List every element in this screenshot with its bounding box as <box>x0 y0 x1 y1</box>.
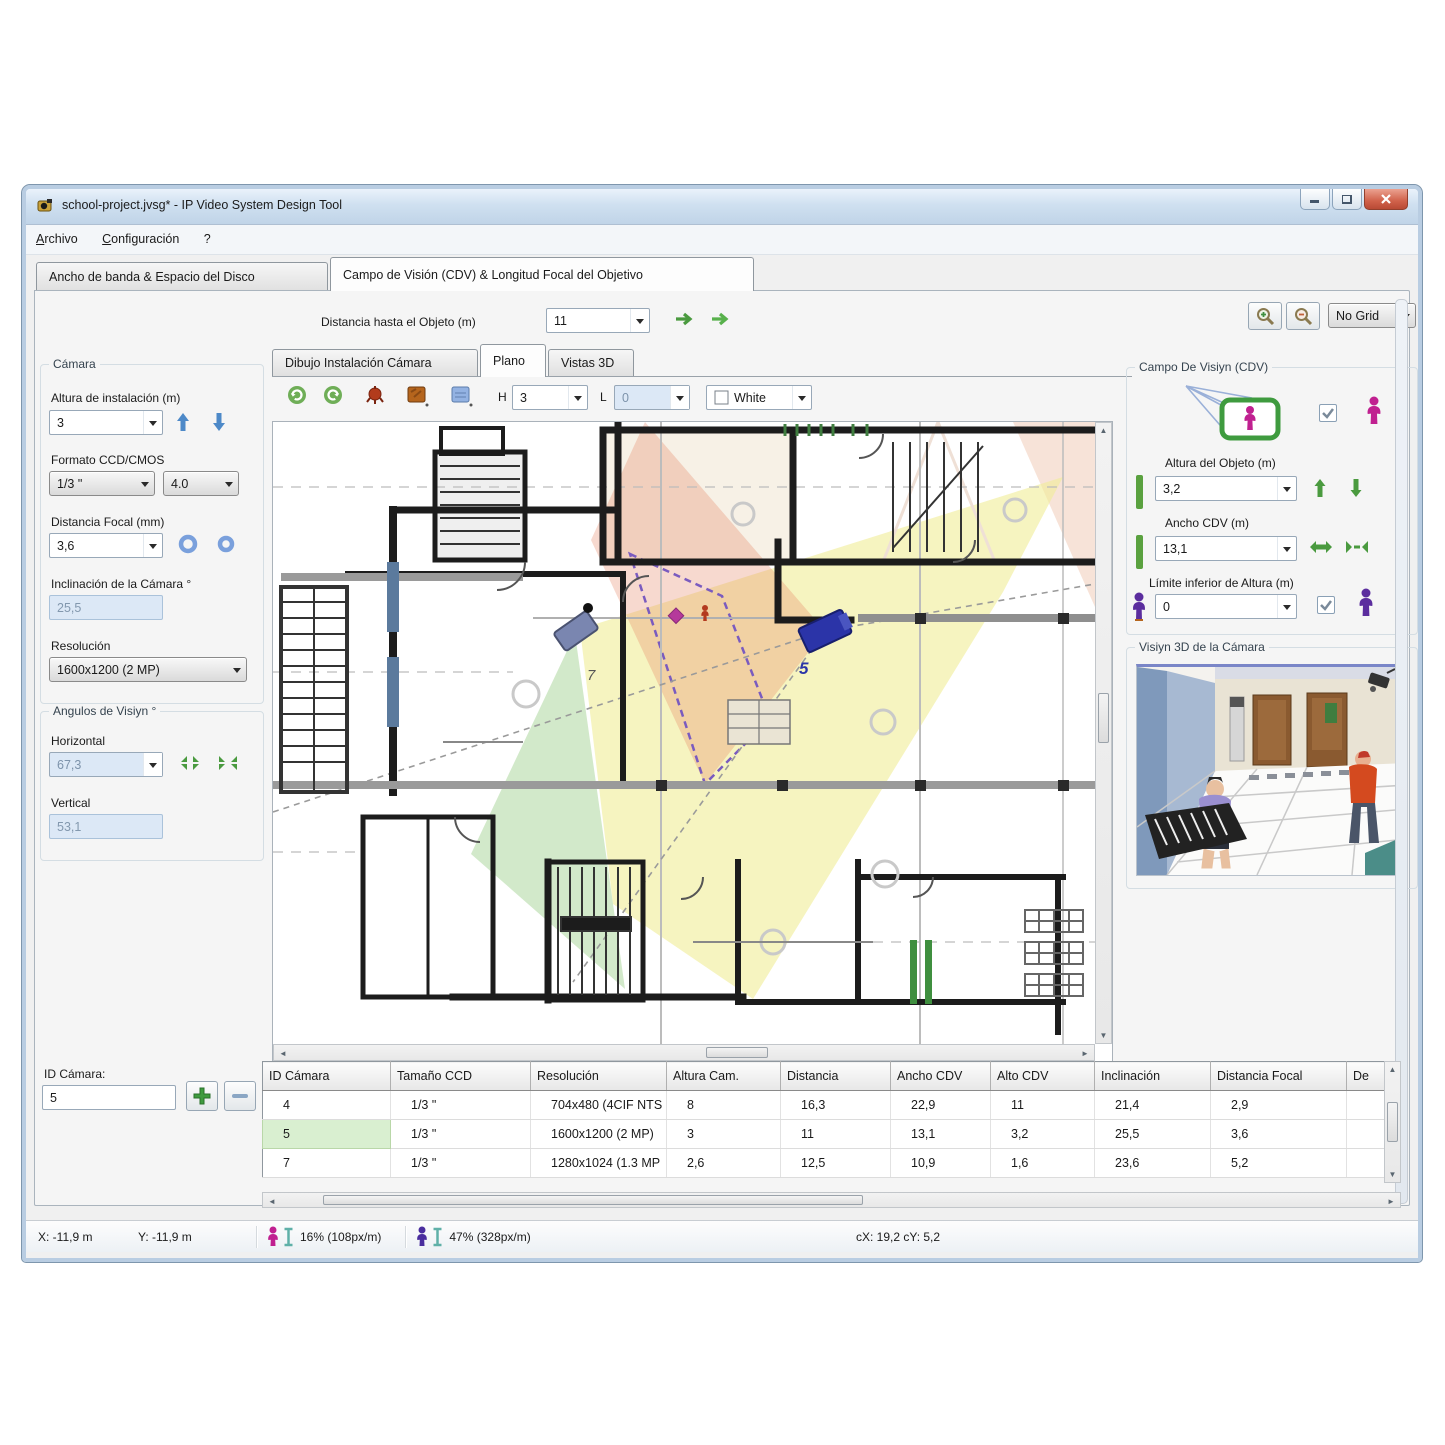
measure-bar-icon <box>283 1226 294 1248</box>
view3d-group: Visiyn 3D de la Cámara <box>1126 647 1418 889</box>
person-purple-icon[interactable] <box>1355 588 1377 618</box>
table-cell[interactable] <box>1347 1120 1385 1149</box>
scroll-left-arrow[interactable]: ◄ <box>278 1049 288 1058</box>
dropdown-arrow-icon[interactable] <box>219 472 238 495</box>
column-header[interactable]: De <box>1347 1062 1385 1091</box>
format-combobox[interactable]: 1/3 " <box>49 471 155 496</box>
camera-7-label: 7 <box>587 667 596 684</box>
dropdown-arrow-icon[interactable] <box>630 309 649 332</box>
focal-ring-wide-icon[interactable] <box>177 533 199 555</box>
camera-table-header[interactable]: ID CámaraTamaño CCDResoluciónAltura Cam.… <box>263 1062 1385 1091</box>
table-cell[interactable]: 4 <box>263 1091 391 1120</box>
distance-increase-fast-icon[interactable] <box>710 311 734 327</box>
dropdown-arrow-icon[interactable] <box>143 411 162 434</box>
angle-expand-icon[interactable] <box>179 754 201 772</box>
dropdown-arrow-icon[interactable] <box>568 386 587 409</box>
rotate-left-icon[interactable] <box>286 384 308 406</box>
fov-group-title: Campo De Visiyn (CDV) <box>1135 360 1272 374</box>
scroll-down-arrow[interactable]: ▼ <box>1096 1031 1111 1040</box>
camera-group-title: Cámara <box>49 357 100 371</box>
column-header[interactable]: Distancia <box>781 1062 891 1091</box>
h-label: H <box>498 390 507 404</box>
camera-group: Cámara Altura de instalación (m) 3 Forma… <box>40 364 264 704</box>
table-cell[interactable]: 1/3 " <box>391 1149 531 1178</box>
h-value: 3 <box>520 391 527 405</box>
app-window: school-project.jvsg* - IP Video System D… <box>22 185 1422 1262</box>
tab-fov[interactable]: Campo de Visión (CDV) & Longitud Focal d… <box>330 257 754 291</box>
table-row[interactable]: 41/3 "704x480 (4CIF NTS816,322,91121,42,… <box>263 1091 1385 1120</box>
add-camera-button[interactable] <box>186 1081 218 1111</box>
table-cell[interactable]: 11 <box>781 1120 891 1149</box>
menu-bar: Archivo Configuración ? <box>26 225 1418 255</box>
table-cell[interactable]: 16,3 <box>781 1091 891 1120</box>
height-up-icon[interactable] <box>175 412 191 432</box>
resolution-value: 1600x1200 (2 MP) <box>57 663 160 677</box>
scroll-left-arrow[interactable]: ◄ <box>267 1197 277 1206</box>
view3d-render <box>1137 667 1407 875</box>
subtab-baseline <box>272 376 1132 377</box>
table-cell[interactable]: 22,9 <box>891 1091 991 1120</box>
table-vscroll-thumb[interactable] <box>1387 1102 1398 1142</box>
distance-combobox[interactable]: 11 <box>546 308 650 333</box>
title-bar[interactable]: school-project.jvsg* - IP Video System D… <box>26 189 1418 225</box>
h-combobox[interactable]: 3 <box>512 385 588 410</box>
minimize-button[interactable] <box>1300 189 1330 210</box>
camera-3d-view[interactable] <box>1136 664 1408 876</box>
column-header[interactable]: Tamaño CCD <box>391 1062 531 1091</box>
status-density2: 47% (328px/m) <box>414 1226 530 1248</box>
zoom-in-button[interactable] <box>1248 302 1282 330</box>
install-height-value: 3 <box>57 416 64 430</box>
column-header[interactable]: ID Cámara <box>263 1062 391 1091</box>
table-cell[interactable]: 11 <box>991 1091 1095 1120</box>
dropdown-arrow-icon[interactable] <box>143 534 162 557</box>
table-row[interactable]: 51/3 "1600x1200 (2 MP)31113,13,225,53,6 <box>263 1120 1385 1149</box>
camera-table-body[interactable]: 41/3 "704x480 (4CIF NTS816,322,91121,42,… <box>263 1091 1385 1178</box>
focal-value: 3,6 <box>57 539 74 553</box>
dropdown-arrow-icon[interactable] <box>1277 477 1296 500</box>
scroll-up-arrow[interactable]: ▲ <box>1385 1065 1400 1074</box>
window-title: school-project.jvsg* - IP Video System D… <box>62 198 342 212</box>
scroll-up-arrow[interactable]: ▲ <box>1096 426 1111 435</box>
camera-5-label: 5 <box>799 659 809 678</box>
close-button[interactable] <box>1364 189 1408 210</box>
dropdown-arrow-icon[interactable] <box>1277 537 1296 560</box>
scroll-right-arrow[interactable]: ► <box>1386 1197 1396 1206</box>
horizontal-label: Horizontal <box>51 734 105 748</box>
format-label: Formato CCD/CMOS <box>51 453 164 467</box>
status-bar: X: -11,9 m Y: -11,9 m 16% (108px/m) 47% … <box>26 1220 1418 1252</box>
table-cell[interactable]: 1/3 " <box>391 1091 531 1120</box>
fov-show-checkbox[interactable] <box>1319 404 1337 422</box>
table-cell[interactable]: 704x480 (4CIF NTS <box>531 1091 667 1120</box>
grid-value: No Grid <box>1336 309 1379 323</box>
color-swatch <box>714 390 729 405</box>
l-combobox[interactable]: 0 <box>614 385 690 410</box>
table-cell[interactable]: 1600x1200 (2 MP) <box>531 1120 667 1149</box>
column-header[interactable]: Ancho CDV <box>891 1062 991 1091</box>
dropdown-arrow-icon[interactable] <box>670 386 689 409</box>
rotate-right-icon[interactable] <box>322 384 344 406</box>
column-header[interactable]: Altura Cam. <box>667 1062 781 1091</box>
table-vertical-scrollbar[interactable]: ▲ ▼ <box>1384 1061 1401 1183</box>
angles-group: Angulos de Visiyn ° Horizontal 67,3 Vert… <box>40 711 264 861</box>
remove-camera-button[interactable] <box>224 1081 256 1111</box>
table-cell[interactable] <box>1347 1149 1385 1178</box>
object-height-down-icon[interactable] <box>1349 478 1363 498</box>
scroll-right-arrow[interactable]: ► <box>1080 1049 1090 1058</box>
add-region-icon[interactable] <box>450 384 474 408</box>
lower-limit-value: 0 <box>1163 600 1170 614</box>
tab-drawing[interactable]: Dibujo Instalación Cámara <box>272 349 478 376</box>
tab-plano[interactable]: Plano <box>480 344 546 377</box>
horizontal-angle-combobox[interactable]: 67,3 <box>49 752 163 777</box>
format-ratio-value: 4.0 <box>171 477 188 491</box>
camera-table: ID CámaraTamaño CCDResoluciónAltura Cam.… <box>262 1061 1385 1178</box>
table-cell[interactable]: 12,5 <box>781 1149 891 1178</box>
person-purple-small-icon <box>1129 592 1149 622</box>
floor-plan-canvas[interactable]: 5 7 <box>273 422 1095 1044</box>
color-select[interactable]: White <box>706 385 812 410</box>
status-cursor: cX: 19,2 cY: 5,2 <box>856 1230 940 1244</box>
distance-value: 11 <box>554 314 567 328</box>
dropdown-arrow-icon[interactable] <box>792 386 811 409</box>
object-height-value: 3,2 <box>1163 482 1180 496</box>
fov-target-icon[interactable] <box>1182 384 1312 446</box>
add-camera-marker-icon[interactable] <box>364 384 386 406</box>
plan-vscroll-thumb[interactable] <box>1098 693 1109 743</box>
dropdown-arrow-icon[interactable] <box>135 472 154 495</box>
column-header[interactable]: Resolución <box>531 1062 667 1091</box>
vertical-label: Vertical <box>51 796 90 810</box>
tilt-label: Inclinación de la Cámara ° <box>51 577 191 591</box>
table-cell[interactable]: 3 <box>667 1120 781 1149</box>
object-height-up-icon[interactable] <box>1313 478 1327 498</box>
focal-ring-tele-icon[interactable] <box>215 533 237 555</box>
dropdown-arrow-icon[interactable] <box>227 658 246 681</box>
menu-archivo[interactable]: Archivo <box>26 225 88 255</box>
angle-collapse-icon[interactable] <box>217 754 239 772</box>
green-bar-icon <box>1135 474 1144 510</box>
table-cell[interactable]: 2,9 <box>1211 1091 1347 1120</box>
table-cell[interactable]: 1280x1024 (1.3 MP <box>531 1149 667 1178</box>
column-header[interactable]: Inclinación <box>1095 1062 1211 1091</box>
table-cell[interactable]: 13,1 <box>891 1120 991 1149</box>
table-hscroll-thumb[interactable] <box>323 1195 863 1205</box>
column-header[interactable]: Distancia Focal <box>1211 1062 1347 1091</box>
table-cell[interactable] <box>1347 1091 1385 1120</box>
green-bar-icon <box>1135 534 1144 570</box>
install-height-combobox[interactable]: 3 <box>49 410 163 435</box>
table-cell[interactable]: 5,2 <box>1211 1149 1347 1178</box>
table-cell[interactable]: 3,2 <box>991 1120 1095 1149</box>
status-density1: 16% (108px/m) <box>265 1226 381 1248</box>
table-cell[interactable]: 7 <box>263 1149 391 1178</box>
maximize-button[interactable] <box>1332 189 1362 210</box>
table-row[interactable]: 71/3 "1280x1024 (1.3 MP2,612,510,91,623,… <box>263 1149 1385 1178</box>
view3d-group-title: Visiyn 3D de la Cámara <box>1135 640 1269 654</box>
status-x: X: -11,9 m <box>38 1230 138 1244</box>
table-cell[interactable]: 10,9 <box>891 1149 991 1178</box>
plan-hscroll-thumb[interactable] <box>706 1047 768 1058</box>
dropdown-arrow-icon[interactable] <box>143 753 162 776</box>
column-header[interactable]: Alto CDV <box>991 1062 1095 1091</box>
menu-configuracion[interactable]: Configuración <box>92 225 189 255</box>
l-label: L <box>600 390 607 404</box>
focal-combobox[interactable]: 3,6 <box>49 533 163 558</box>
fov-width-expand-icon[interactable] <box>1309 540 1333 554</box>
angles-group-title: Angulos de Visiyn ° <box>49 704 160 718</box>
measure-bar-icon <box>432 1226 443 1248</box>
plan-panel: 5 7 ▲ ▼ ◄ ► <box>272 421 1113 1062</box>
plan-vertical-scrollbar[interactable]: ▲ ▼ <box>1095 422 1112 1044</box>
person-magenta-icon[interactable] <box>1363 396 1385 426</box>
resolution-combobox[interactable]: 1600x1200 (2 MP) <box>49 657 247 682</box>
status-y: Y: -11,9 m <box>138 1230 248 1244</box>
fov-width-label: Ancho CDV (m) <box>1165 516 1249 530</box>
camera-id-label: ID Cámara: <box>44 1067 105 1081</box>
table-cell[interactable]: 1,6 <box>991 1149 1095 1178</box>
table-cell[interactable]: 8 <box>667 1091 781 1120</box>
color-value: White <box>734 391 766 405</box>
table-cell[interactable]: 5 <box>263 1120 391 1149</box>
table-cell[interactable]: 1/3 " <box>391 1120 531 1149</box>
table-cell[interactable]: 23,6 <box>1095 1149 1211 1178</box>
tab-3dviews[interactable]: Vistas 3D <box>548 349 634 376</box>
menu-help[interactable]: ? <box>194 225 221 255</box>
zoom-out-button[interactable] <box>1286 302 1320 330</box>
height-down-icon[interactable] <box>211 412 227 432</box>
table-cell[interactable]: 3,6 <box>1211 1120 1347 1149</box>
add-obstacle-icon[interactable] <box>406 384 430 408</box>
table-cell[interactable]: 2,6 <box>667 1149 781 1178</box>
table-cell[interactable]: 25,5 <box>1095 1120 1211 1149</box>
table-horizontal-scrollbar[interactable]: ◄ ► <box>262 1192 1401 1208</box>
object-height-combobox[interactable]: 3,2 <box>1155 476 1297 501</box>
density2-text: 47% (328px/m) <box>449 1230 530 1244</box>
lower-limit-label: Límite inferior de Altura (m) <box>1149 576 1294 590</box>
distance-label: Distancia hasta el Objeto (m) <box>321 315 476 329</box>
plan-horizontal-scrollbar[interactable]: ◄ ► <box>273 1044 1095 1061</box>
tilt-field[interactable]: 25,5 <box>49 595 163 620</box>
resolution-label: Resolución <box>51 639 110 653</box>
tab-bandwidth[interactable]: Ancho de banda & Espacio del Disco <box>36 262 328 291</box>
person-purple-icon <box>414 1226 430 1248</box>
install-height-label: Altura de instalación (m) <box>51 391 180 405</box>
density1-text: 16% (108px/m) <box>300 1230 381 1244</box>
fov-width-combobox[interactable]: 13,1 <box>1155 536 1297 561</box>
camera-7-pivot <box>583 603 593 613</box>
l-value: 0 <box>622 391 629 405</box>
scroll-down-arrow[interactable]: ▼ <box>1385 1170 1400 1179</box>
horizontal-angle-value: 67,3 <box>57 758 81 772</box>
lower-limit-combobox[interactable]: 0 <box>1155 594 1297 619</box>
fov-group: Campo De Visiyn (CDV) Altura del Objeto … <box>1126 367 1418 635</box>
table-cell[interactable]: 21,4 <box>1095 1091 1211 1120</box>
focal-label: Distancia Focal (mm) <box>51 515 164 529</box>
format-value: 1/3 " <box>57 477 82 491</box>
fov-width-value: 13,1 <box>1163 542 1187 556</box>
object-height-label: Altura del Objeto (m) <box>1165 456 1276 470</box>
distance-increase-icon[interactable] <box>674 311 698 327</box>
info-label <box>728 700 790 744</box>
person-magenta-icon <box>265 1226 281 1248</box>
camera-id-field[interactable]: 5 <box>42 1085 176 1110</box>
dropdown-arrow-icon[interactable] <box>1277 595 1296 618</box>
fov-width-collapse-icon[interactable] <box>1345 540 1369 554</box>
app-icon <box>36 197 54 220</box>
lower-limit-checkbox[interactable] <box>1317 596 1335 614</box>
vertical-angle-field[interactable]: 53,1 <box>49 814 163 839</box>
format-ratio-combobox[interactable]: 4.0 <box>163 471 239 496</box>
